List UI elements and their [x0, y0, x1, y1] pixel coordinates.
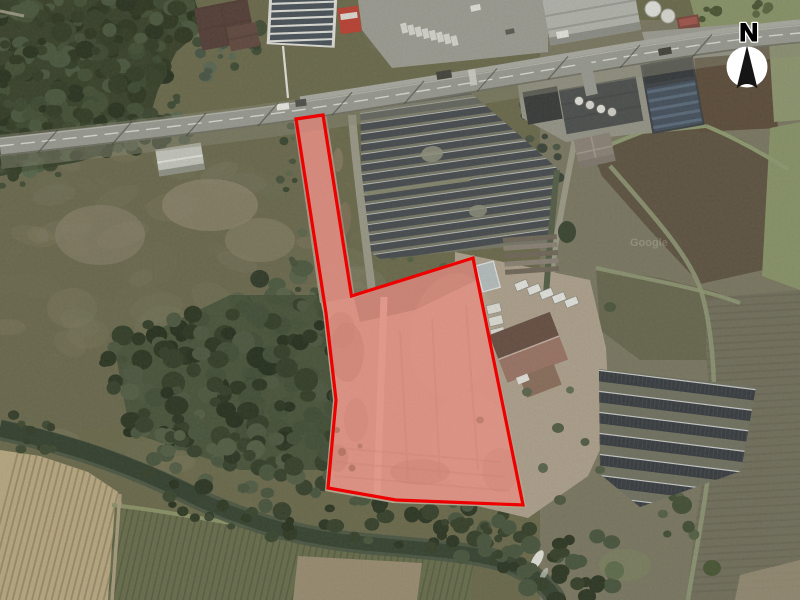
svg-text:Google: Google [630, 237, 668, 249]
